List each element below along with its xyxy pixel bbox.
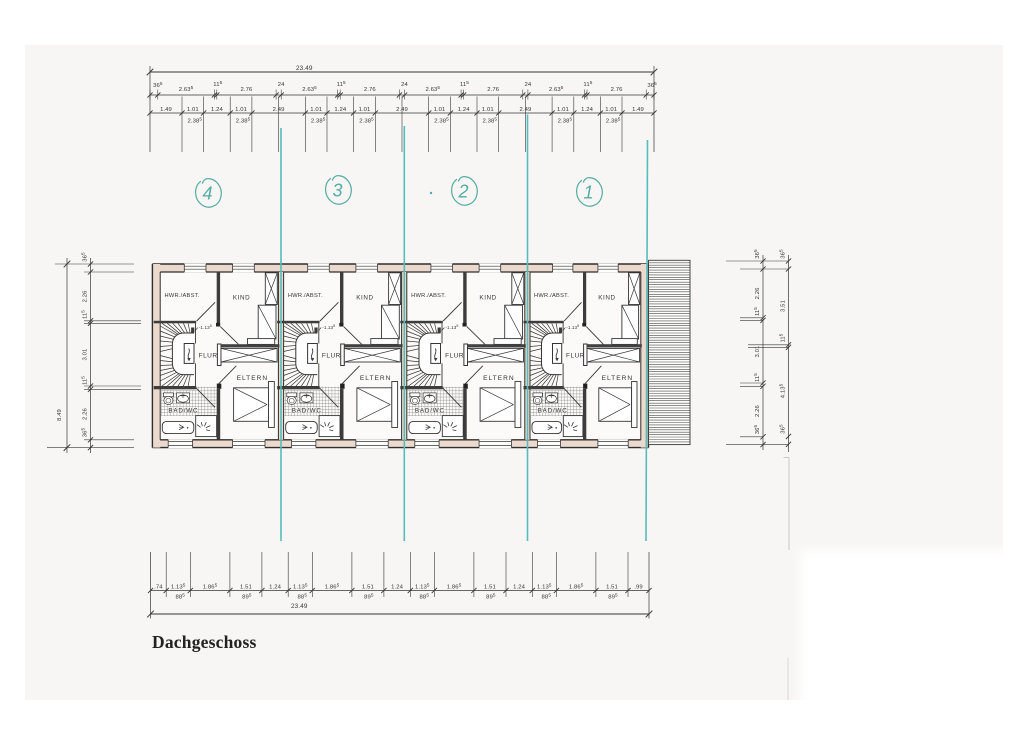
svg-text:1.51: 1.51	[362, 584, 374, 590]
svg-text:1.49: 1.49	[160, 107, 172, 113]
svg-text:2.26: 2.26	[755, 287, 761, 299]
svg-text:3.01: 3.01	[83, 349, 89, 361]
svg-text:HWR./ABST.: HWR./ABST.	[288, 293, 323, 299]
svg-text:1.51: 1.51	[484, 584, 496, 590]
svg-text:.99: .99	[634, 584, 643, 590]
svg-text:BAD/WC: BAD/WC	[168, 408, 198, 415]
svg-text:ELTERN: ELTERN	[483, 375, 515, 382]
svg-text:1.51: 1.51	[606, 584, 618, 590]
svg-text:1.24: 1.24	[391, 584, 403, 590]
svg-text:FLUR: FLUR	[199, 353, 218, 360]
svg-text:ELTERN: ELTERN	[360, 375, 392, 382]
svg-text:FLUR: FLUR	[445, 353, 464, 360]
svg-text:24: 24	[525, 82, 532, 88]
svg-text:1.24: 1.24	[211, 107, 223, 113]
svg-text:KIND: KIND	[233, 295, 250, 302]
svg-text:2.26: 2.26	[83, 407, 89, 419]
svg-text:2.76: 2.76	[611, 87, 623, 93]
svg-text:24: 24	[278, 82, 285, 88]
svg-text:1.24: 1.24	[269, 584, 281, 590]
svg-text:HWR./ABST.: HWR./ABST.	[411, 293, 446, 299]
svg-text:1.01: 1.01	[482, 107, 494, 113]
svg-text:BAD/WC: BAD/WC	[415, 408, 445, 415]
svg-text:24: 24	[401, 82, 408, 88]
svg-text:ELTERN: ELTERN	[602, 375, 634, 382]
svg-text:1.01: 1.01	[235, 107, 247, 113]
svg-text:2.76: 2.76	[487, 87, 499, 93]
svg-text:Dachgeschoss: Dachgeschoss	[152, 632, 257, 652]
svg-text:8.49: 8.49	[57, 409, 63, 421]
svg-text:1.51: 1.51	[240, 584, 252, 590]
svg-text:FLUR: FLUR	[322, 353, 341, 360]
svg-text:BAD/WC: BAD/WC	[292, 408, 322, 415]
svg-text:2: 2	[457, 182, 468, 202]
svg-text:KIND: KIND	[598, 295, 615, 302]
svg-text:1.01: 1.01	[359, 107, 371, 113]
svg-text:ELTERN: ELTERN	[237, 375, 269, 382]
svg-text:1.24: 1.24	[334, 107, 346, 113]
svg-text:1.01: 1.01	[310, 107, 322, 113]
svg-text:1.01: 1.01	[557, 107, 569, 113]
svg-text:HWR./ABST.: HWR./ABST.	[165, 293, 200, 299]
svg-text:1.24: 1.24	[513, 584, 525, 590]
svg-text:BAD/WC: BAD/WC	[538, 408, 568, 415]
svg-text:1.01: 1.01	[605, 107, 617, 113]
svg-text:HWR./ABST.: HWR./ABST.	[534, 293, 569, 299]
svg-text:23.49: 23.49	[291, 603, 308, 610]
svg-text:1.24: 1.24	[458, 107, 470, 113]
svg-text:2.76: 2.76	[240, 87, 252, 93]
svg-text:1.01: 1.01	[434, 107, 446, 113]
svg-text:2.76: 2.76	[364, 87, 376, 93]
svg-text:2.26: 2.26	[83, 290, 89, 302]
svg-text:KIND: KIND	[479, 295, 496, 302]
svg-text:1: 1	[583, 183, 593, 203]
svg-text:1.01: 1.01	[187, 107, 199, 113]
svg-text:4: 4	[202, 184, 212, 204]
svg-text:2.26: 2.26	[755, 404, 761, 416]
svg-text:FLUR: FLUR	[566, 353, 585, 360]
svg-text:3: 3	[332, 181, 342, 201]
svg-text:1.24: 1.24	[581, 107, 593, 113]
svg-text:23.49: 23.49	[296, 65, 313, 72]
svg-text:KIND: KIND	[356, 295, 373, 302]
svg-text:3.51: 3.51	[781, 300, 787, 312]
svg-text:1.49: 1.49	[632, 107, 644, 113]
svg-text:.74: .74	[154, 584, 163, 590]
